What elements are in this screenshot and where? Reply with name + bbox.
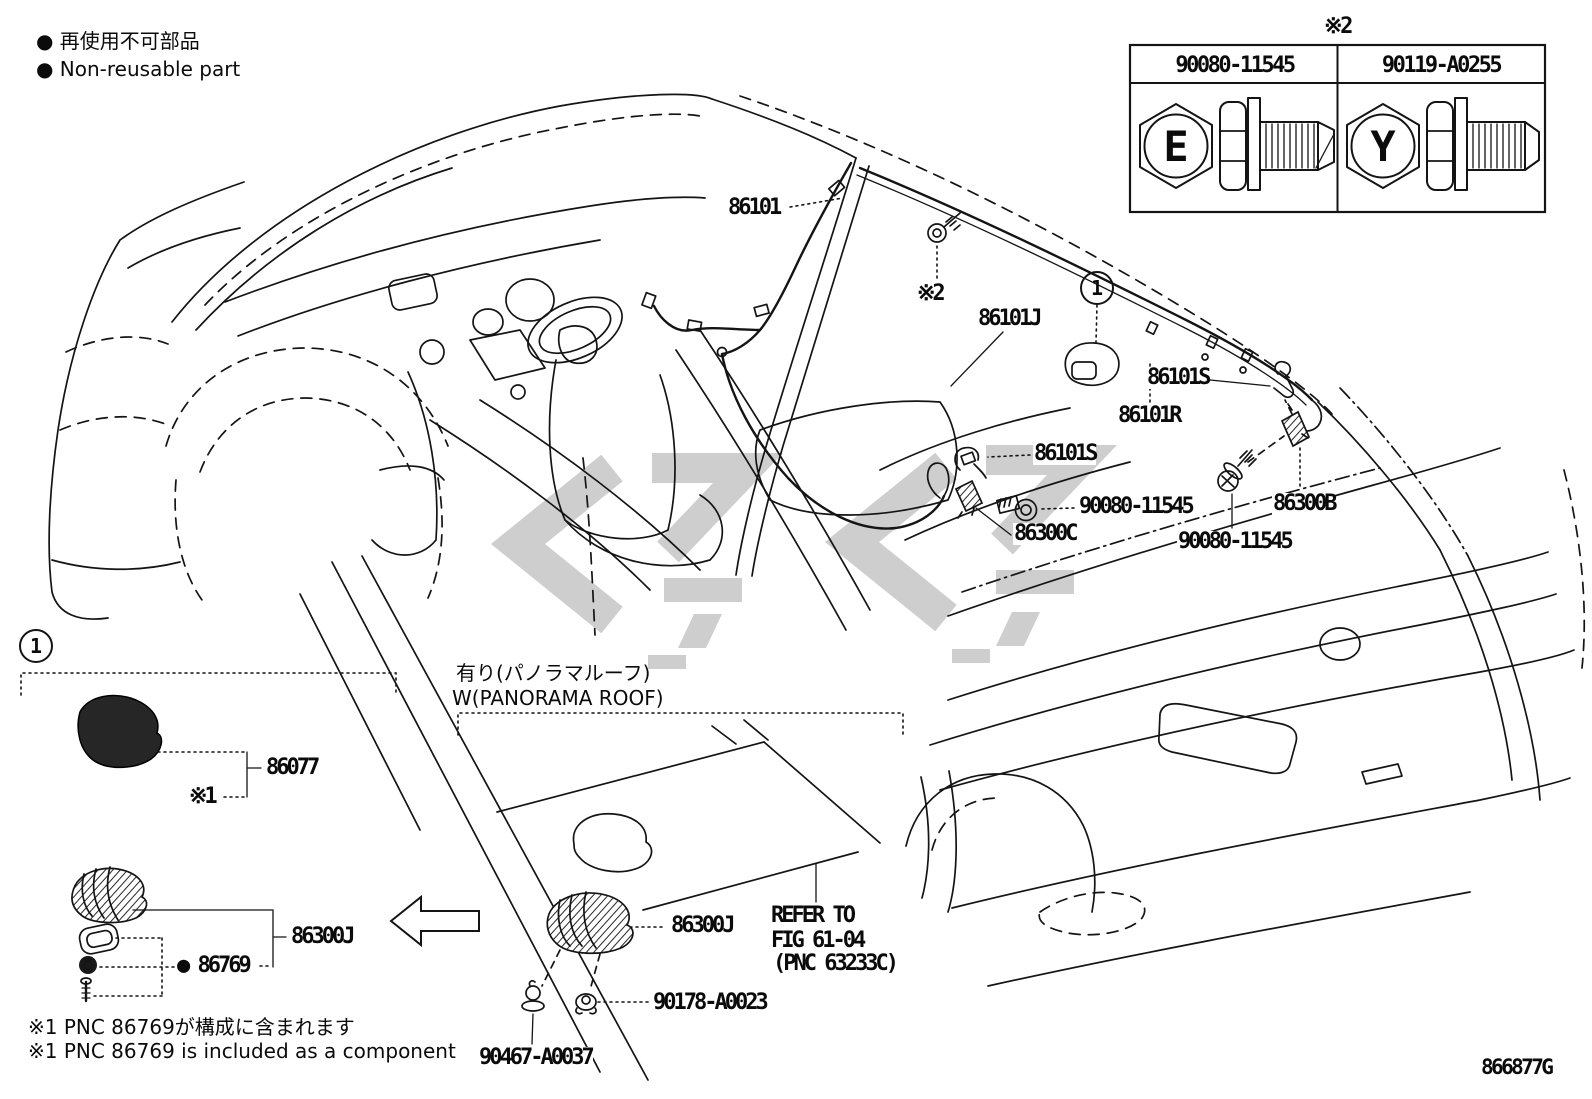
label-ref1: ※1 [188,786,216,808]
antenna-fin-cover-86077 [78,696,161,768]
refer-line-1: REFER TO [770,905,854,927]
label-86300J-left: 86300J [290,926,353,948]
label-86300B: 86300B [1272,493,1335,515]
label-86101: 86101 [727,197,780,219]
footnote-en: ※1 PNC 86769 is included as a component [28,1040,456,1063]
label-86101S-lower: 86101S [1033,443,1096,465]
panorama-note-en: W(PANORAMA ROOF) [452,687,664,710]
diagram-number: 866877G [1481,1057,1551,1078]
panorama-note-jp: 有り(パノラマルーフ) [456,662,650,685]
label-90178-A0023: 90178-A0023 [652,992,767,1014]
index-circle-1-main: 1 [1091,276,1103,300]
label-86101S-upper: 86101S [1146,367,1209,389]
fastener-table-col1: 90080-11545 [1132,53,1337,78]
label-86769: ● 86769 [176,955,250,977]
footnote-jp: ※1 PNC 86769が構成に含まれます [28,1016,355,1039]
label-90080-11545-b: 90080-11545 [1177,531,1292,553]
legend-jp: ● 再使用不可部品 [36,30,200,53]
label-90080-11545-a: 90080-11545 [1078,496,1193,518]
refer-line-2: FIG 61-04 [770,930,864,952]
pointer-arrow-icon [391,897,479,945]
label-86300J-panorama: 86300J [670,915,733,937]
bolt-head-letter-Y: Y [1370,122,1396,171]
index-circle-1-inset: 1 [30,634,42,658]
non-reusable-nut-86769 [79,956,97,974]
fastener-table-col2: 90119-A0255 [1339,53,1543,78]
legend-en: ● Non-reusable part [36,58,240,81]
label-86300C: 86300C [1013,523,1076,545]
label-86101R: 86101R [1117,405,1180,427]
inset-86300J-assembly [72,867,479,1001]
label-86101J: 86101J [977,308,1040,330]
inset-86077: 1 [20,630,396,797]
label-ref2: ※2 [916,283,944,305]
refer-line-3: (PNC 63233C) [772,953,897,975]
bolt-head-letter-E: E [1163,122,1188,171]
fastener-table-title: ※2 [1130,14,1545,39]
label-86077: 86077 [265,757,318,779]
label-90467-A0037: 90467-A0037 [478,1047,593,1069]
parts-diagram-page: 1 E Y [0,0,1592,1099]
